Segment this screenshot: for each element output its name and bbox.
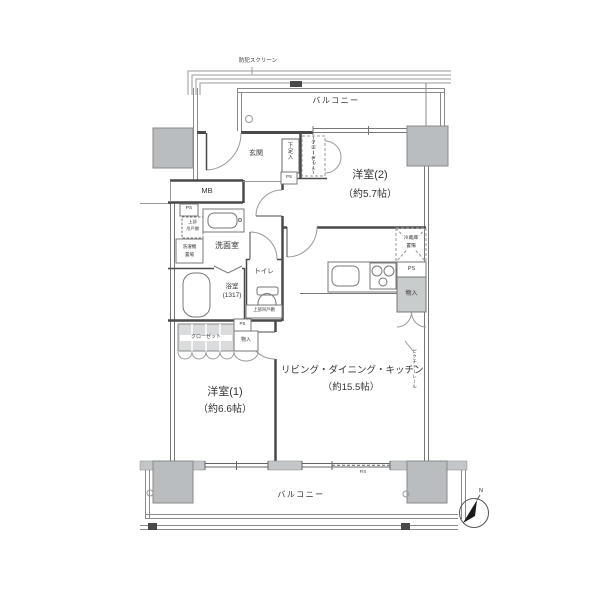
ldk-name: リビング・ダイニング・キッチン (281, 366, 421, 377)
storage-strip-label: 物入 (234, 338, 258, 344)
upper-cabinet-label-l1: 上部 (182, 220, 203, 225)
ldk-door-arc (287, 227, 317, 257)
toilet-fixture (246, 287, 282, 318)
picture-rail-label: ピクチャーレール (412, 349, 417, 401)
ldk-window (302, 461, 390, 470)
bedroom2-size: （約5.7帖） (330, 189, 410, 201)
closet1-label: クローゼット (180, 335, 232, 341)
closet1-folding-doors (178, 352, 258, 361)
bathtub (183, 273, 210, 317)
security-screen-lines (188, 67, 451, 95)
bath-folding-door (214, 266, 242, 273)
ldk-size: （約15.5帖） (281, 383, 421, 394)
plan-linework (0, 0, 601, 602)
pillars (153, 126, 448, 503)
bedroom1-window (205, 461, 268, 470)
washer-label-l1: 洗濯機 (176, 244, 203, 249)
security-screen-label: 防犯スクリーン (230, 58, 286, 64)
washer-label-l2: 置場 (176, 252, 203, 257)
balcony-bottom-label: バルコニー (261, 490, 341, 499)
screen-marker (290, 81, 302, 87)
compass-n-label: N (476, 488, 486, 494)
entrance-ps-label: PS (281, 174, 297, 179)
compass (460, 495, 489, 528)
balcony-top-label: バルコニー (296, 96, 376, 105)
fridge-label-l2: 置場 (402, 244, 420, 250)
mb-label: MB (192, 187, 222, 196)
toilet-door-arc (250, 232, 277, 259)
washroom-label: 洗面室 (203, 241, 251, 250)
fridge-label-l1: 冷蔵庫 (399, 236, 423, 242)
storage-right-label: 物入 (397, 291, 426, 298)
drain-circle (246, 116, 253, 123)
closet2-label: クローゼット (310, 139, 315, 175)
entrance-label: 玄関 (242, 150, 270, 158)
pillar-top-left (153, 128, 193, 168)
toilet-cabinet-label: 上部吊戸棚 (246, 308, 282, 313)
bedroom2-name: 洋室(2) (330, 169, 410, 182)
pillar-top-right (407, 126, 448, 166)
washer-box (176, 239, 203, 263)
pillar-bottom-right (407, 461, 447, 503)
vanity-counter (203, 209, 244, 232)
bath-name-label: 浴室 (214, 283, 250, 290)
shoe-cabinet-label: 下足入 (286, 142, 292, 172)
ps-right-label: PS (397, 266, 426, 272)
bedroom1-size: （約6.6帖） (185, 404, 265, 416)
ps-left-label: PS (180, 206, 198, 212)
washroom-door-arc (256, 190, 282, 216)
pillar-bottom-left (153, 461, 193, 503)
fix-label: FIX (352, 470, 374, 475)
floor-plan: 防犯スクリーン バルコニー 玄関 下足入 PS クローゼット 洋室(2) （約5… (0, 0, 601, 602)
bath-size-label: (1317) (214, 292, 250, 299)
bedroom1-name: 洋室(1) (185, 386, 265, 399)
upper-cabinet-label-l2: 吊戸棚 (182, 227, 203, 232)
front-door (206, 133, 241, 170)
toilet-label: トイレ (250, 268, 278, 275)
ps-strip-label: PS (234, 321, 251, 326)
